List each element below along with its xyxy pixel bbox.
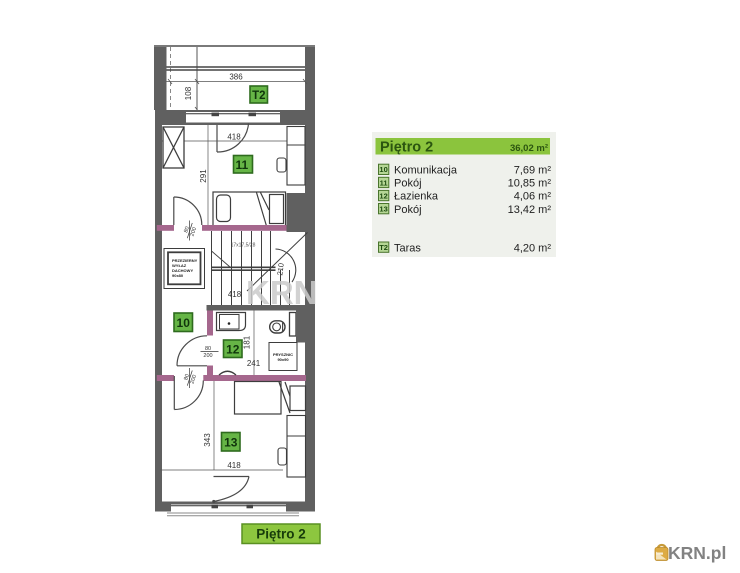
svg-text:7,69 m²: 7,69 m² [514,165,552,177]
svg-text:90x80: 90x80 [172,273,184,278]
svg-text:12: 12 [226,343,240,357]
svg-text:241: 241 [247,359,261,368]
svg-text:13: 13 [224,436,238,450]
svg-text:10,85 m²: 10,85 m² [508,178,552,190]
svg-text:36,02 m²: 36,02 m² [510,143,548,154]
svg-text:Piętro 2: Piętro 2 [380,140,433,156]
svg-text:181: 181 [243,335,252,349]
svg-text:10: 10 [379,165,387,174]
svg-text:200: 200 [203,353,212,359]
svg-text:11: 11 [235,158,248,172]
svg-text:Komunikacja: Komunikacja [394,165,458,177]
svg-text:108: 108 [184,86,193,100]
svg-text:T2: T2 [252,90,265,102]
svg-text:13,42 m²: 13,42 m² [508,204,552,216]
svg-text:10: 10 [177,316,191,330]
svg-text:Pokój: Pokój [394,204,422,216]
svg-text:343: 343 [203,433,212,447]
svg-text:4,06 m²: 4,06 m² [514,191,552,203]
svg-text:KRN: KRN [246,274,318,311]
svg-text:T2: T2 [379,243,388,252]
svg-text:12: 12 [379,191,387,200]
svg-text:418: 418 [228,290,242,299]
svg-text:Pokój: Pokój [394,178,422,190]
svg-text:Łazienka: Łazienka [394,191,439,203]
svg-text:90x90: 90x90 [277,357,289,362]
svg-text:11: 11 [380,178,388,187]
svg-text:291: 291 [199,169,208,183]
svg-text:4,20 m²: 4,20 m² [514,242,552,254]
svg-text:418: 418 [227,461,241,470]
svg-text:80: 80 [205,346,211,352]
svg-text:418: 418 [227,133,241,142]
svg-text:KRN.pl: KRN.pl [668,543,726,563]
svg-text:17x17,5/28: 17x17,5/28 [231,243,256,249]
svg-text:386: 386 [229,73,243,82]
svg-text:Piętro 2: Piętro 2 [256,527,306,542]
svg-text:Taras: Taras [394,242,421,254]
svg-text:13: 13 [379,205,387,214]
